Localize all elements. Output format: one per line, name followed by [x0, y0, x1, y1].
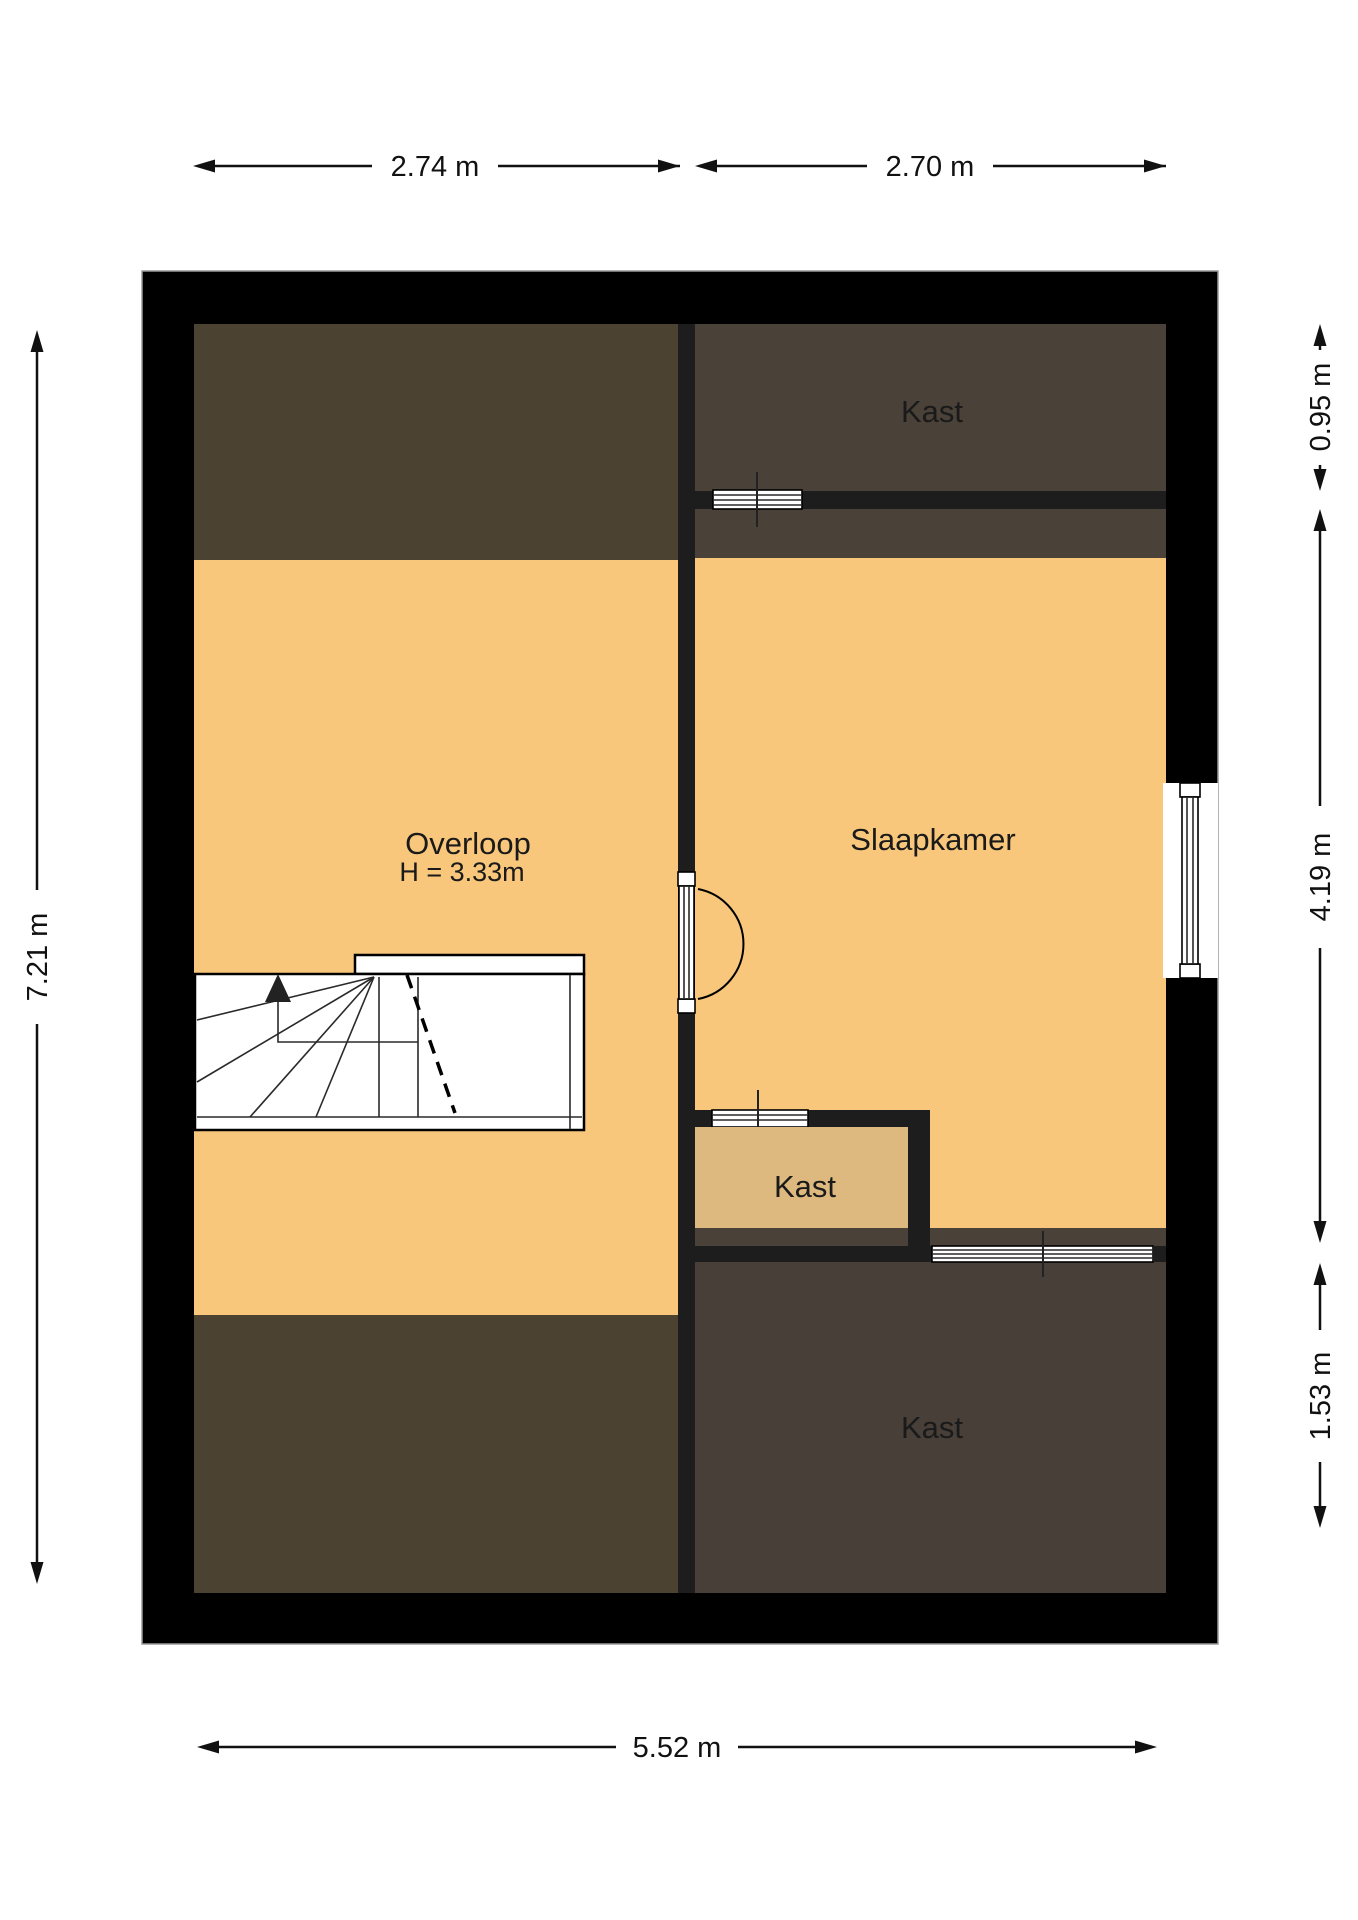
window-kast-middle — [712, 1110, 808, 1127]
low-ceiling-strip-top — [695, 509, 1166, 558]
room-label-slaapkamer: Slaapkamer — [850, 822, 1015, 857]
room-overloop-floor — [194, 560, 678, 1315]
svg-text:2.70 m: 2.70 m — [886, 151, 975, 183]
wall-kast-middle-right — [908, 1110, 930, 1262]
attic-area-bottom-left — [194, 1315, 678, 1593]
dimension-left-height: 7.21 m — [22, 330, 54, 1584]
dimension-bottom-width: 5.52 m — [197, 1732, 1157, 1764]
attic-area-top-left — [194, 324, 678, 560]
dimension-top-left: 2.74 m — [193, 151, 680, 183]
low-ceiling-strip-bottom — [695, 1228, 1166, 1247]
room-height-note: H = 3.33m — [399, 857, 524, 887]
dimension-top-right: 2.70 m — [695, 151, 1166, 183]
wall-central-upper — [678, 324, 695, 872]
dimension-right-middle: 4.19 m — [1305, 509, 1337, 1243]
svg-text:7.21 m: 7.21 m — [22, 913, 54, 1002]
svg-text:4.19 m: 4.19 m — [1305, 833, 1337, 922]
room-label-kast-top: Kast — [901, 394, 963, 429]
room-label-kast-middle: Kast — [774, 1169, 836, 1204]
dimension-right-bottom: 1.53 m — [1305, 1263, 1337, 1528]
svg-text:5.52 m: 5.52 m — [633, 1732, 722, 1764]
staircase — [195, 955, 584, 1130]
floorplan-canvas: Kast Slaapkamer Overloop H = 3.33m Kast … — [0, 0, 1358, 1920]
svg-text:2.74 m: 2.74 m — [391, 151, 480, 183]
window-right-wall — [1163, 783, 1218, 978]
room-label-kast-bottom: Kast — [901, 1410, 963, 1445]
wall-kast-bottom-top — [695, 1246, 932, 1262]
svg-text:0.95 m: 0.95 m — [1305, 363, 1337, 452]
room-label-overloop: Overloop — [405, 826, 531, 861]
svg-text:1.53 m: 1.53 m — [1305, 1352, 1337, 1441]
dimension-right-top: 0.95 m — [1305, 324, 1337, 491]
wall-stub-right — [1153, 1246, 1166, 1262]
floorplan-page: Kast Slaapkamer Overloop H = 3.33m Kast … — [0, 0, 1358, 1920]
wall-central-lower — [678, 1013, 695, 1593]
